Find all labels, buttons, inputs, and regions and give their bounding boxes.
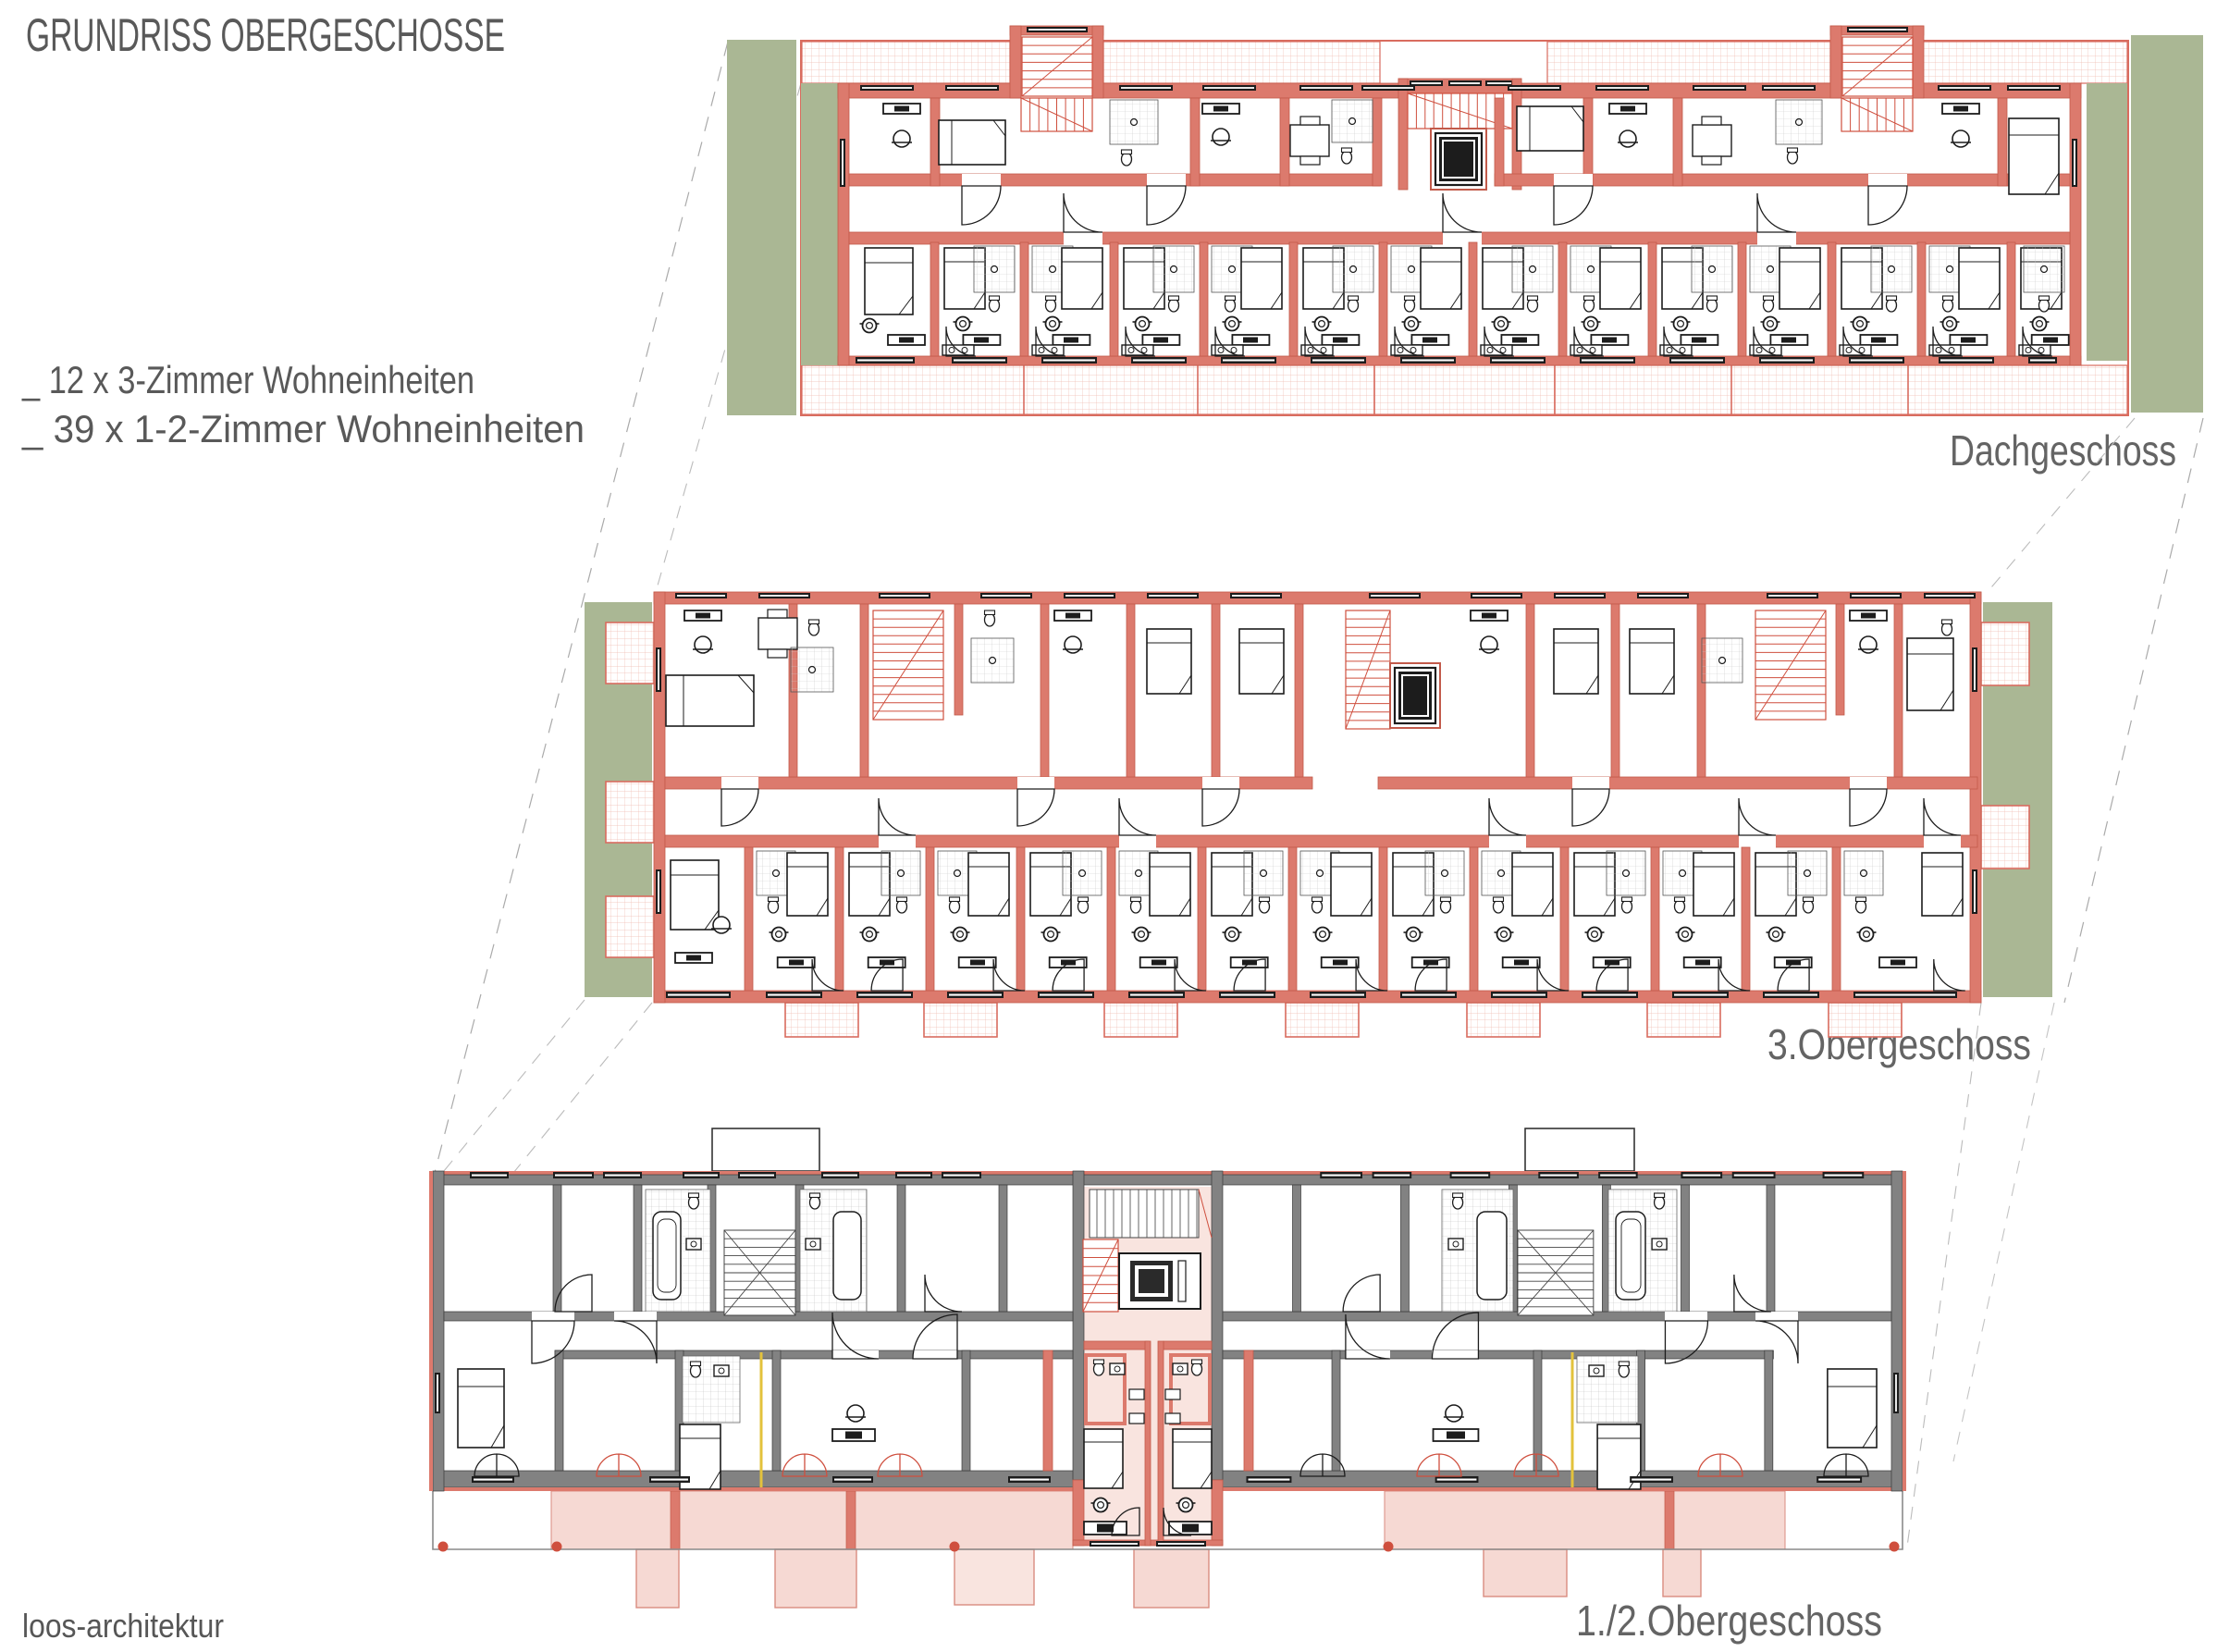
svg-text:GRUNDRISS OBERGESCHOSSE: GRUNDRISS OBERGESCHOSSE	[26, 9, 505, 61]
svg-text:1./2.Obergeschoss: 1./2.Obergeschoss	[1576, 1597, 1882, 1645]
svg-text:Dachgeschoss: Dachgeschoss	[1950, 426, 2176, 475]
svg-text:_ 12 x 3-Zimmer Wohneinheiten: _ 12 x 3-Zimmer Wohneinheiten	[21, 358, 474, 401]
svg-text:_ 39 x 1-2-Zimmer Wohneinheite: _ 39 x 1-2-Zimmer Wohneinheiten	[21, 407, 585, 450]
svg-text:loos-architektur: loos-architektur	[22, 1607, 224, 1645]
